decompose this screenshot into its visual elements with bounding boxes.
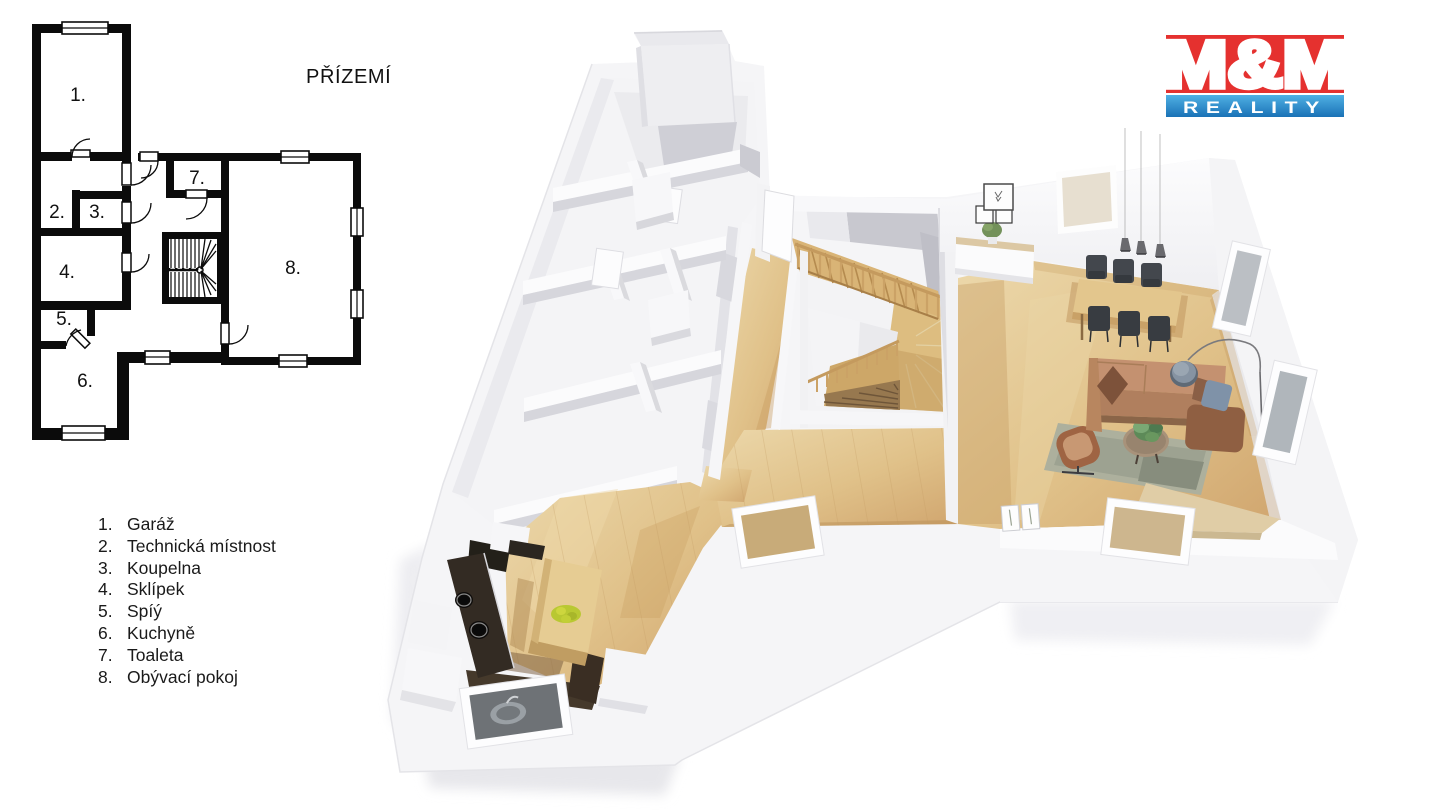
svg-text:7.: 7. — [189, 168, 205, 189]
svg-text:8.: 8. — [285, 258, 301, 279]
svg-text:1.: 1. — [70, 85, 86, 106]
svg-text:M&M: M&M — [1166, 35, 1344, 93]
svg-text:5.: 5. — [56, 309, 72, 330]
svg-text:REALITY: REALITY — [1183, 99, 1327, 117]
svg-text:6.: 6. — [77, 371, 93, 392]
svg-text:3.: 3. — [89, 202, 105, 223]
svg-text:4.: 4. — [59, 262, 75, 283]
svg-text:2.: 2. — [49, 202, 65, 223]
